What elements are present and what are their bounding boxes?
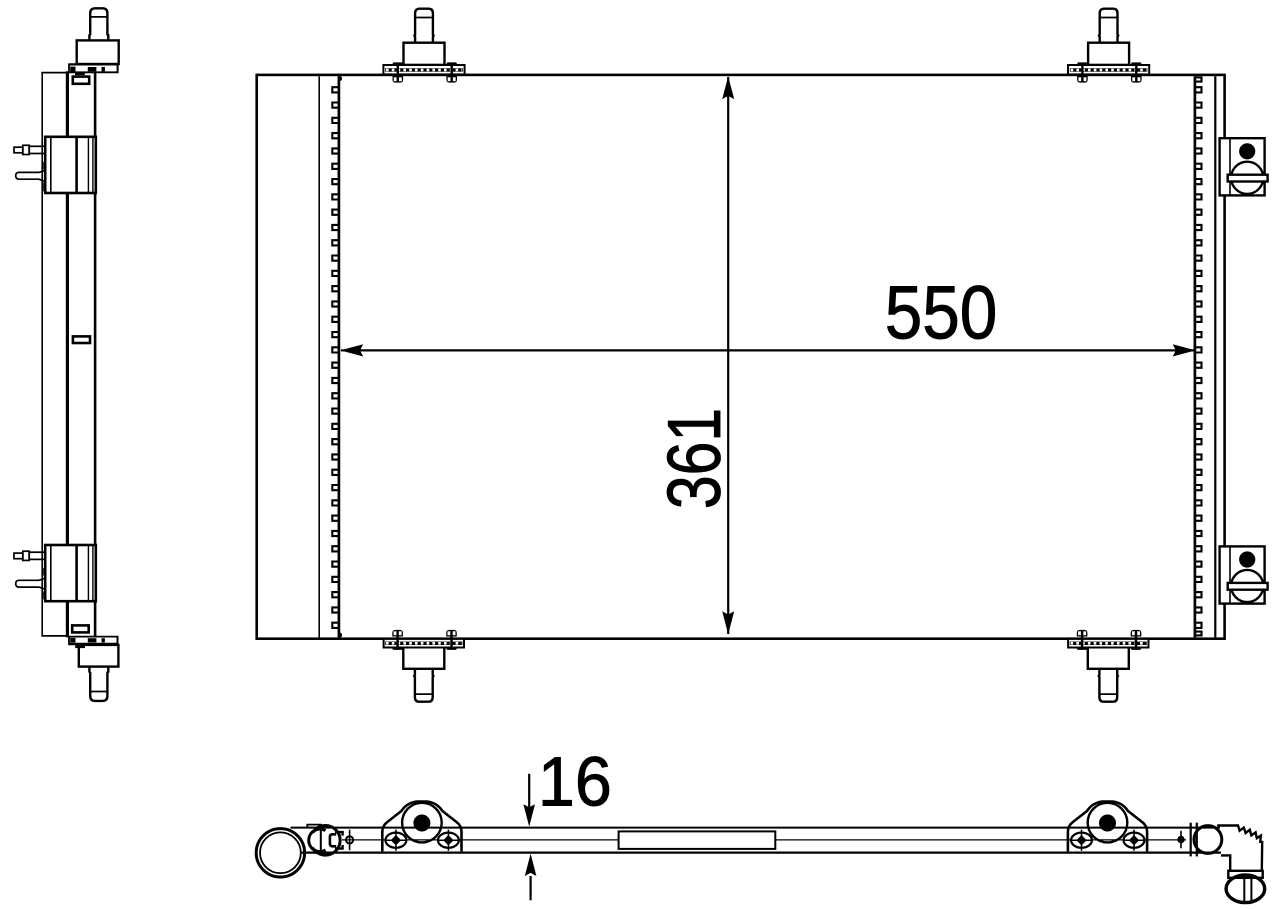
svg-text:361: 361 (653, 408, 737, 509)
svg-text:550: 550 (885, 271, 998, 355)
svg-text:16: 16 (538, 743, 612, 821)
